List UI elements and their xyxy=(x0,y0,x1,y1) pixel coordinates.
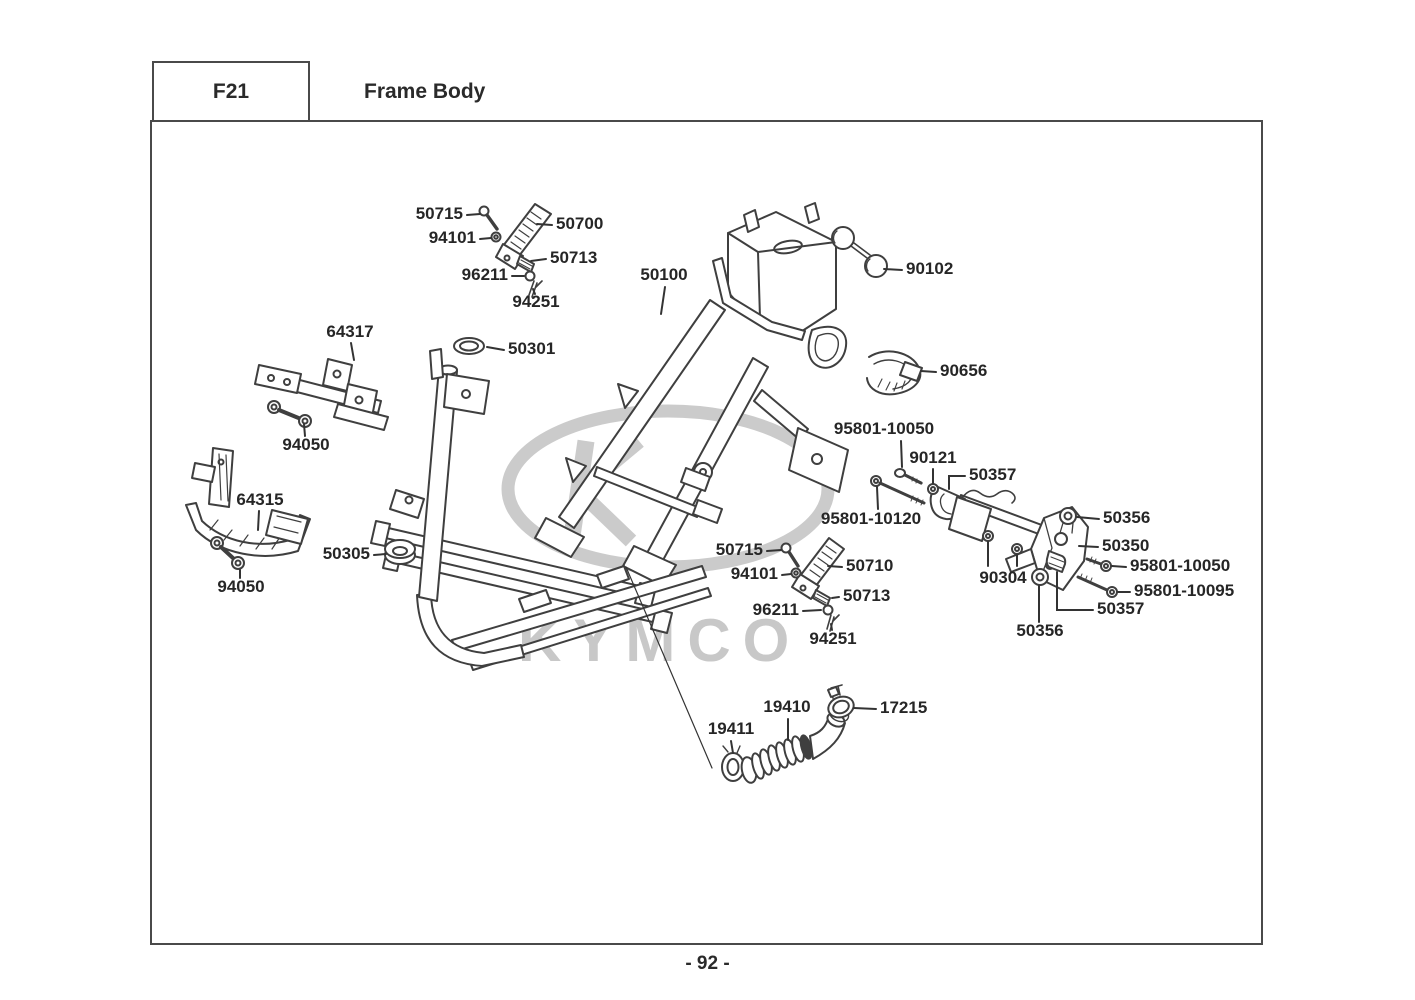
leader-line xyxy=(258,511,259,530)
leader-line xyxy=(949,476,965,489)
leader-line xyxy=(731,741,733,753)
part-94050-nuts-upper xyxy=(268,401,311,427)
leader-line xyxy=(803,610,821,611)
leader-line xyxy=(480,238,491,239)
leader-line xyxy=(767,550,781,551)
leader-line xyxy=(832,597,839,598)
leader-line xyxy=(351,343,354,360)
leader-line xyxy=(467,214,480,215)
leader-line xyxy=(831,624,832,630)
battery-box xyxy=(713,203,846,368)
leader-line xyxy=(531,259,546,261)
parts-catalog-page: KYMCO xyxy=(0,0,1415,1000)
leader-line xyxy=(877,487,878,509)
leader-line xyxy=(1079,546,1098,547)
leader-line xyxy=(537,224,552,225)
leader-line xyxy=(854,708,876,709)
leader-line xyxy=(884,269,902,270)
frame-body-artwork xyxy=(186,203,1117,784)
part-64315-bracket xyxy=(186,448,310,556)
leader-line xyxy=(374,554,386,555)
page-title: Frame Body xyxy=(364,80,485,104)
leader-line xyxy=(661,287,665,314)
part-50305-grommet xyxy=(385,540,415,564)
leader-line xyxy=(921,371,936,372)
part-50301-ring xyxy=(454,338,484,354)
leader-line xyxy=(828,566,842,567)
part-90656-band xyxy=(867,351,922,394)
leader-line xyxy=(304,424,305,436)
page-number: - 92 - xyxy=(0,953,1415,975)
part-50700-stand xyxy=(480,204,552,297)
frame-body-exploded-diagram: KYMCO xyxy=(0,0,1415,1000)
leader-line xyxy=(1112,566,1126,567)
leader-line xyxy=(901,441,902,467)
leader-line xyxy=(782,574,791,575)
part-90102-caps xyxy=(832,227,887,277)
section-code: F21 xyxy=(213,80,249,104)
part-64317-bracket xyxy=(255,359,388,430)
stand-pivot-assembly xyxy=(871,469,1117,597)
section-code-box: F21 xyxy=(152,61,310,122)
air-duct-assembly xyxy=(722,685,857,784)
leader-line xyxy=(487,347,504,350)
